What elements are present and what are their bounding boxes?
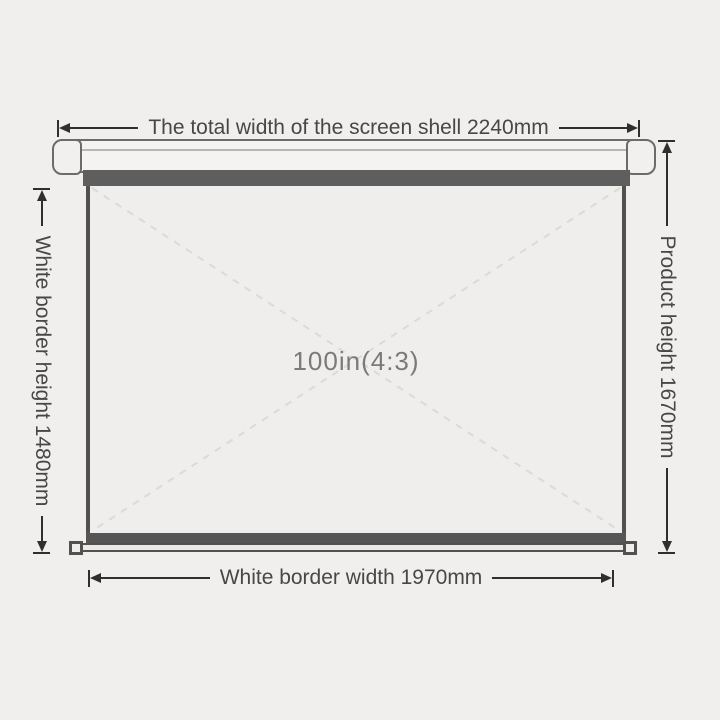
product-dimension-diagram: The total width of the screen shell 2240… bbox=[0, 0, 720, 720]
screen-bottom-bar bbox=[86, 533, 626, 543]
dimension-line bbox=[41, 201, 43, 226]
product-height-label: Product height 1670mm bbox=[655, 236, 679, 459]
dimension-line bbox=[666, 468, 668, 541]
dimension-tick bbox=[34, 552, 51, 554]
screen-body: 100in(4:3) bbox=[86, 186, 626, 543]
dimension-line bbox=[101, 577, 210, 579]
arrow-up-icon bbox=[37, 190, 47, 201]
total-width-label: The total width of the screen shell 2240… bbox=[148, 116, 548, 140]
product-height-dimension: Product height 1670mm bbox=[655, 140, 679, 554]
shell-left-cap bbox=[52, 139, 82, 175]
screen-size-label: 100in(4:3) bbox=[90, 346, 622, 377]
white-border-height-label: White border height 1480mm bbox=[30, 236, 54, 507]
shell-slot-bar bbox=[83, 170, 630, 186]
arrow-left-icon bbox=[59, 123, 70, 133]
arrow-left-icon bbox=[90, 573, 101, 583]
dimension-line bbox=[70, 127, 138, 129]
bottom-rod-left-cap bbox=[69, 541, 83, 555]
dimension-tick bbox=[638, 120, 640, 137]
screen-shell-tube bbox=[52, 139, 656, 173]
shell-right-cap bbox=[626, 139, 656, 175]
arrow-right-icon bbox=[601, 573, 612, 583]
dimension-line bbox=[41, 516, 43, 541]
total-width-dimension: The total width of the screen shell 2240… bbox=[57, 116, 640, 140]
white-border-height-dimension: White border height 1480mm bbox=[30, 188, 54, 554]
dimension-line bbox=[492, 577, 601, 579]
arrow-up-icon bbox=[662, 142, 672, 153]
white-border-width-label: White border width 1970mm bbox=[220, 566, 483, 590]
bottom-rod-right-cap bbox=[623, 541, 637, 555]
arrow-right-icon bbox=[627, 123, 638, 133]
arrow-down-icon bbox=[662, 541, 672, 552]
dimension-tick bbox=[659, 552, 676, 554]
arrow-down-icon bbox=[37, 541, 47, 552]
white-border-width-dimension: White border width 1970mm bbox=[88, 566, 614, 590]
shell-tube-seam bbox=[82, 149, 630, 151]
bottom-rod bbox=[70, 543, 636, 552]
dimension-line bbox=[666, 153, 668, 226]
dimension-tick bbox=[612, 570, 614, 587]
dimension-line bbox=[559, 127, 627, 129]
